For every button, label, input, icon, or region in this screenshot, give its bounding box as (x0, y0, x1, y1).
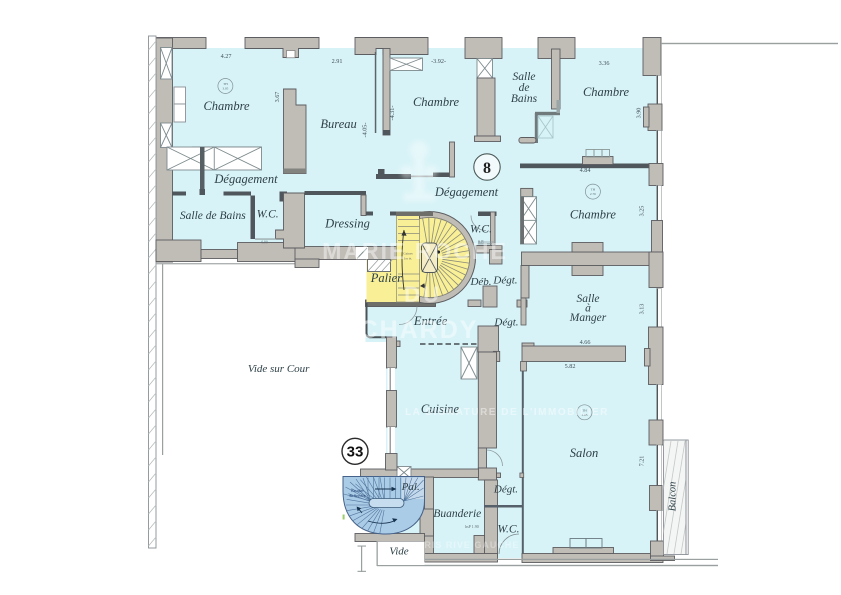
svg-text:Salle de Bains: Salle de Bains (180, 210, 246, 222)
svg-text:3.67: 3.67 (274, 92, 281, 103)
svg-text:Chambre: Chambre (413, 95, 460, 109)
svg-text:TH: TH (591, 188, 596, 192)
svg-text:LA SIGNATURE DE L'IMMOBILIER: LA SIGNATURE DE L'IMMOBILIER (405, 407, 609, 418)
svg-text:-3.92-: -3.92- (431, 58, 446, 65)
svg-text:Dressing: Dressing (324, 217, 370, 231)
svg-text:Dégt.: Dégt. (493, 317, 518, 329)
svg-text:-4.05-: -4.05- (362, 123, 369, 138)
svg-text:Dégt.: Dégt. (493, 484, 518, 496)
svg-text:Dégt.: Dégt. (492, 275, 517, 287)
svg-text:Déb.: Déb. (469, 276, 491, 288)
svg-text:4.66: 4.66 (580, 339, 591, 346)
svg-text:DU: DU (404, 282, 442, 307)
svg-text:Vide: Vide (389, 546, 408, 558)
svg-text:Palier: Palier (370, 271, 402, 285)
svg-text:Chambre: Chambre (583, 85, 630, 99)
svg-text:2.91: 2.91 (332, 58, 343, 65)
svg-text:-4.31-: -4.31- (389, 106, 396, 121)
svg-text:0.90: 0.90 (261, 241, 267, 245)
svg-text:3.13: 3.13 (639, 304, 646, 315)
svg-text:Vide sur Cour: Vide sur Cour (248, 363, 310, 375)
svg-text:Pal.: Pal. (401, 481, 420, 493)
svg-text:W.C.: W.C. (257, 209, 279, 221)
svg-text:3.05: 3.05 (222, 87, 228, 91)
svg-text:W.C.: W.C. (498, 524, 520, 536)
svg-text:4.84: 4.84 (580, 167, 591, 174)
svg-text:3.36: 3.36 (599, 60, 610, 67)
svg-text:Escalier: Escalier (351, 489, 364, 493)
svg-text:33: 33 (347, 444, 364, 461)
svg-text:Buanderie: Buanderie (433, 508, 481, 520)
svg-text:4.27: 4.27 (221, 53, 232, 60)
svg-text:8: 8 (483, 160, 491, 177)
svg-text:PARIS RIVE GAUCHE: PARIS RIVE GAUCHE (411, 540, 520, 550)
svg-text:Dégagement: Dégagement (434, 185, 499, 199)
svg-text:Manger: Manger (569, 312, 607, 324)
svg-text:Salon: Salon (570, 446, 598, 460)
svg-text:Bureau: Bureau (320, 117, 356, 131)
svg-text:Chambre: Chambre (203, 99, 250, 113)
svg-text:TH: TH (223, 82, 228, 86)
svg-text:7.21: 7.21 (639, 456, 646, 467)
svg-text:Balcon: Balcon (668, 482, 679, 512)
svg-text:W.C.: W.C. (470, 224, 492, 236)
svg-text:de Service: de Service (349, 494, 366, 498)
svg-text:Dégagement: Dégagement (213, 172, 278, 186)
svg-text:3.90: 3.90 (636, 108, 643, 119)
svg-text:Bains: Bains (511, 93, 538, 105)
svg-text:3.25: 3.25 (639, 206, 646, 217)
svg-text:hsP 1.90: hsP 1.90 (465, 524, 479, 529)
svg-text:CHARDY: CHARDY (360, 316, 479, 344)
svg-text:MARIE ROCHE: MARIE ROCHE (322, 238, 508, 264)
svg-text:5.82: 5.82 (565, 363, 576, 370)
svg-text:Chambre: Chambre (570, 208, 617, 222)
svg-text:2.76: 2.76 (590, 192, 596, 196)
